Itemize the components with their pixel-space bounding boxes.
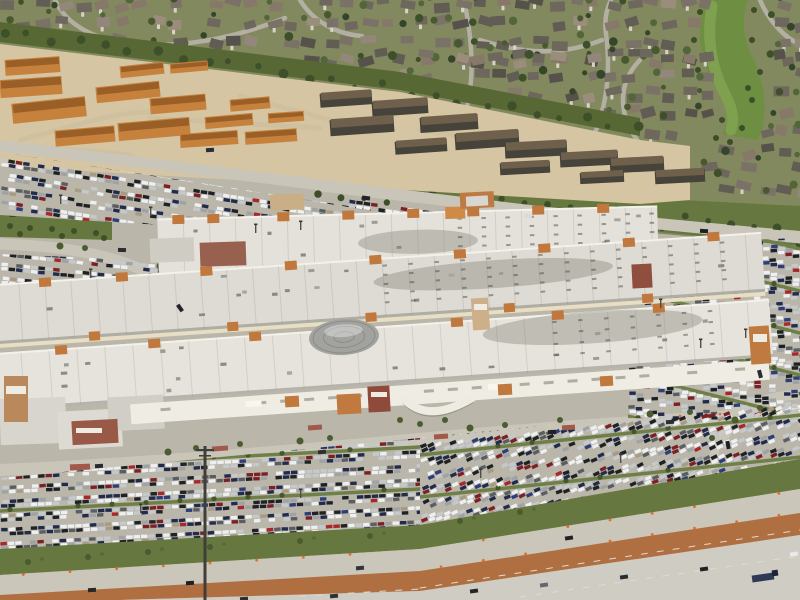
car [237,529,244,533]
car [156,534,163,538]
car [216,493,222,497]
tree [605,124,611,130]
car [793,310,800,314]
rooftop-hvac-unit [193,229,197,232]
car [350,453,357,457]
car [409,492,416,496]
car [157,506,163,510]
tree [448,55,455,62]
house-roof [226,36,241,46]
car [173,491,180,495]
rooftop-hvac-unit [617,258,622,260]
car [90,514,96,517]
tree [713,135,719,141]
rooftop-hvac-unit [267,232,271,235]
car [195,461,202,465]
car [149,520,155,524]
car [524,214,532,219]
roof-accent-tower [249,331,262,341]
car [401,493,408,497]
rooftop-hvac-unit [616,248,621,250]
car [778,288,784,291]
car [238,506,245,510]
house-roof [550,51,567,61]
rooftop-hvac-unit [487,267,492,269]
rooftop-hvac-unit [538,254,543,256]
tree [418,0,424,6]
rooftop-hvac-unit [461,268,466,270]
car [172,505,178,508]
rooftop-hvac-unit [718,264,724,268]
car [778,275,784,278]
traffic-cone [679,415,682,418]
rooftop-hvac-unit [539,272,544,274]
car [54,258,61,262]
tree [757,405,763,411]
car [792,352,799,356]
entrance-gable [285,396,300,408]
tree [697,9,703,15]
tree [148,18,155,25]
car [786,309,792,312]
tree [789,64,796,71]
car [238,478,245,482]
car [290,499,297,503]
car [319,459,325,463]
roof-accent-tower [407,209,419,218]
car [119,521,126,525]
car [378,456,385,460]
roof-accent-tower [227,322,239,332]
car [8,541,15,545]
rooftop-hvac-unit [650,222,655,224]
car [31,512,38,516]
car [75,170,82,174]
house-roof [306,18,320,26]
car [53,525,59,529]
car [291,457,297,460]
car [372,471,378,475]
car [268,500,275,504]
car [697,394,703,397]
tree [17,231,23,237]
car [327,459,334,463]
car [135,479,142,483]
house-roof [660,69,675,78]
car [10,532,16,535]
rooftop-hvac-unit [720,251,725,253]
car [164,519,171,523]
tree [525,50,534,59]
driveway [610,95,613,100]
car [320,515,327,519]
tree [705,218,711,224]
house-roof [552,41,568,51]
house-roof [76,2,92,13]
house-roof [532,53,545,63]
car [46,267,53,271]
car [394,512,401,516]
car [54,483,61,487]
car [327,511,334,515]
car [38,183,45,187]
tree [583,41,591,49]
rooftop-hvac-unit [513,265,518,267]
car [254,487,260,491]
car [134,469,141,473]
car [312,474,319,478]
car [31,502,38,506]
tree [379,79,386,86]
car [393,521,399,525]
rooftop-hvac-unit [411,299,416,301]
car [164,468,170,471]
car [379,470,386,474]
tree [771,281,776,286]
rooftop-hvac-unit [64,363,69,367]
car [38,271,45,275]
roof-accent-tower [172,215,184,224]
car [142,520,149,524]
roof-accent-tower [552,310,565,320]
car [402,511,409,515]
tree [652,46,660,54]
roof-accent-tower [597,204,609,213]
rooftop-hvac-unit [614,218,620,221]
car [725,406,731,409]
roof-accent-tower [504,303,516,313]
car [97,513,104,517]
rooftop-hvac-unit [393,366,398,369]
tree [51,2,57,8]
driveway [687,64,690,69]
car [119,498,126,502]
tree [445,14,452,21]
car [60,525,66,528]
car [762,401,769,405]
car [96,537,103,541]
rooftop-hvac-unit [482,235,487,237]
car [779,359,785,362]
rooftop-hvac-unit [460,259,465,261]
tree [739,125,745,131]
house-roof [319,0,332,6]
car [665,414,672,418]
car [232,488,238,492]
mall-tower [471,297,490,330]
car [246,477,253,481]
traffic-cone [735,520,738,523]
rooftop-hvac-unit [160,349,165,353]
car [785,253,792,257]
car [793,254,800,258]
car [179,518,186,522]
car [16,517,22,521]
car [356,566,364,571]
driveway [59,24,62,29]
car [238,501,245,505]
car [283,471,290,475]
car [328,469,335,473]
car [401,507,408,511]
house-roof [685,108,698,117]
tree [569,88,576,95]
car [171,467,178,471]
mall-building [270,193,305,210]
car [740,395,746,398]
traffic-cone [777,492,780,495]
car [113,508,120,512]
utility-pole-crossarm [196,449,214,451]
car [363,485,370,489]
car [231,464,238,468]
parking-light-pole [480,470,481,478]
car [269,458,275,462]
car [400,521,406,524]
rooftop-hvac-unit [166,389,171,393]
rooftop-hvac-unit [703,319,708,323]
car [127,498,133,501]
car [755,399,761,402]
car [52,539,59,543]
car [674,388,681,392]
car [223,492,230,496]
tree [776,88,784,96]
car [341,524,348,528]
car [180,491,186,494]
driveway [230,46,233,51]
car [791,394,798,398]
rooftop-hvac-unit [591,269,596,271]
car [319,501,326,505]
rooftop-hvac-unit [605,339,610,341]
driveway [556,63,559,68]
car [267,490,274,494]
car [313,483,320,487]
car [785,350,791,353]
tree [517,509,523,515]
rooftop-hvac-unit [499,272,503,275]
car [179,467,186,471]
car [356,457,363,461]
car [710,299,717,303]
car [289,527,296,531]
car [319,525,326,529]
car [10,499,17,503]
car [328,483,335,487]
car [193,532,199,535]
car [230,530,237,534]
tree [583,113,592,122]
car [185,532,192,536]
rooftop-hvac-unit [670,272,675,274]
car [207,531,214,535]
car [0,542,7,546]
rooftop-hvac-unit [642,256,647,258]
tower-sign [76,428,102,433]
tree [211,12,216,17]
car [62,497,69,501]
car [275,462,282,466]
car [387,442,393,445]
car [645,399,652,403]
car [141,497,148,501]
car [349,472,355,476]
parking-light-pole [620,455,621,463]
car [363,499,370,503]
car [386,498,393,502]
car [105,485,112,489]
tree [634,121,644,131]
tree [109,502,114,507]
car [134,511,141,515]
car [8,504,15,508]
car [222,530,229,534]
car [682,390,689,394]
car [784,322,791,326]
rooftop-hvac-unit [487,276,492,278]
car [652,397,658,401]
car [224,474,231,478]
rooftop-hvac-unit [710,343,715,345]
roof-accent-tower [652,303,665,313]
tree [696,73,704,81]
traffic-cone [693,527,696,530]
tree [701,159,708,166]
car [733,393,740,397]
car [245,505,252,509]
house-roof [36,0,50,7]
car [31,210,38,214]
car [769,258,776,262]
car [341,458,348,462]
car [39,512,46,516]
car [98,273,105,277]
house-roof [552,21,565,32]
house-roof [284,21,297,31]
car [393,497,400,501]
car [298,474,305,478]
car [46,512,52,515]
car [327,487,334,491]
rooftop-hvac-unit [344,269,348,272]
tree [787,23,795,31]
tree [297,538,303,544]
car [9,174,16,178]
car [82,514,89,518]
rooftop-hvac-unit [481,217,486,219]
car [386,470,393,474]
tree [721,147,729,155]
car [68,524,74,528]
car [186,494,193,498]
car [17,485,24,489]
car [158,478,164,482]
car [335,473,341,476]
car [179,495,185,498]
tree [347,447,352,452]
car [725,387,731,390]
tree [793,89,800,96]
roof-accent-tower [89,331,101,341]
car [778,307,785,311]
house-roof [533,36,549,44]
car [333,524,340,528]
rooftop-hvac-unit [436,288,441,290]
rooftop-hvac-unit [566,280,571,282]
traffic-cone [566,525,569,528]
car [62,259,69,263]
car [156,510,162,513]
car [628,405,635,409]
car [47,483,54,487]
car [703,410,709,413]
rooftop-hvac-unit [649,213,654,215]
car [193,508,199,512]
rooftop-hvac-unit [530,234,535,236]
traffic-cone [349,553,352,556]
house-roof [96,17,110,28]
car [793,250,799,254]
rooftop-hvac-unit [662,338,667,341]
car [149,468,156,472]
traffic-cone [302,556,305,559]
car [793,376,799,379]
rooftop-hvac-unit [530,225,535,227]
car [726,401,733,405]
tower-sign [753,334,767,342]
car [82,500,89,504]
car [112,498,118,501]
rooftop-hvac-unit [695,262,700,264]
tree [367,533,373,539]
traffic-cone [69,570,72,573]
tree [454,39,463,48]
car [157,482,164,486]
aerial-photo-outlet-mall [0,0,800,600]
car [165,477,172,481]
car [659,399,666,403]
tree [586,13,591,18]
rooftop-hvac-unit [462,287,467,289]
rooftop-hvac-unit [602,223,607,225]
car [143,492,150,496]
tree [499,196,505,202]
house-roof [492,69,506,78]
parking-light-pole [60,196,61,204]
car [60,539,67,543]
car [187,522,193,525]
tree [509,17,517,25]
rooftop-hvac-unit [515,292,520,294]
car [357,467,364,471]
traffic-cone [651,533,654,536]
car [336,454,343,458]
car [306,516,312,519]
car [150,524,156,527]
house-roof [326,39,340,48]
roof-accent-tower [451,317,464,327]
parking-light-pole [300,490,301,498]
tree [75,503,80,508]
car [373,452,380,456]
tree [101,40,110,49]
car [785,280,792,284]
car [231,516,238,520]
car [630,396,637,400]
car [771,263,777,266]
car [762,396,769,400]
